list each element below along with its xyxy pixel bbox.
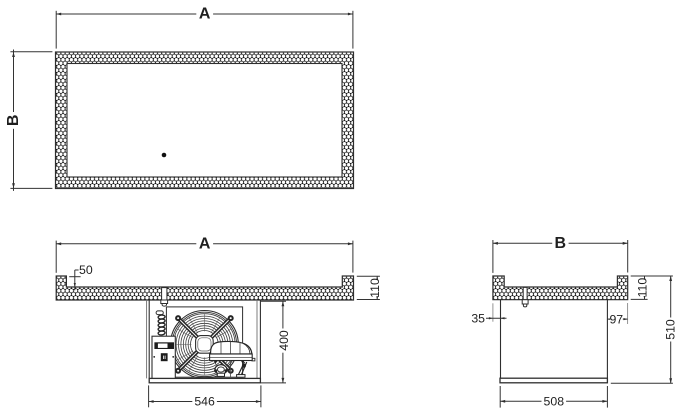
svg-text:B: B [555, 235, 567, 252]
svg-text:110: 110 [368, 278, 382, 298]
svg-text:508: 508 [544, 395, 565, 409]
svg-text:50: 50 [79, 263, 93, 277]
svg-text:400: 400 [277, 330, 291, 351]
svg-text:510: 510 [663, 319, 677, 340]
svg-text:546: 546 [194, 395, 215, 409]
svg-text:A: A [199, 235, 211, 252]
svg-text:A: A [199, 6, 211, 23]
svg-text:97: 97 [609, 312, 623, 326]
svg-text:110: 110 [636, 278, 650, 298]
svg-text:35: 35 [471, 311, 485, 325]
svg-text:B: B [5, 115, 22, 127]
